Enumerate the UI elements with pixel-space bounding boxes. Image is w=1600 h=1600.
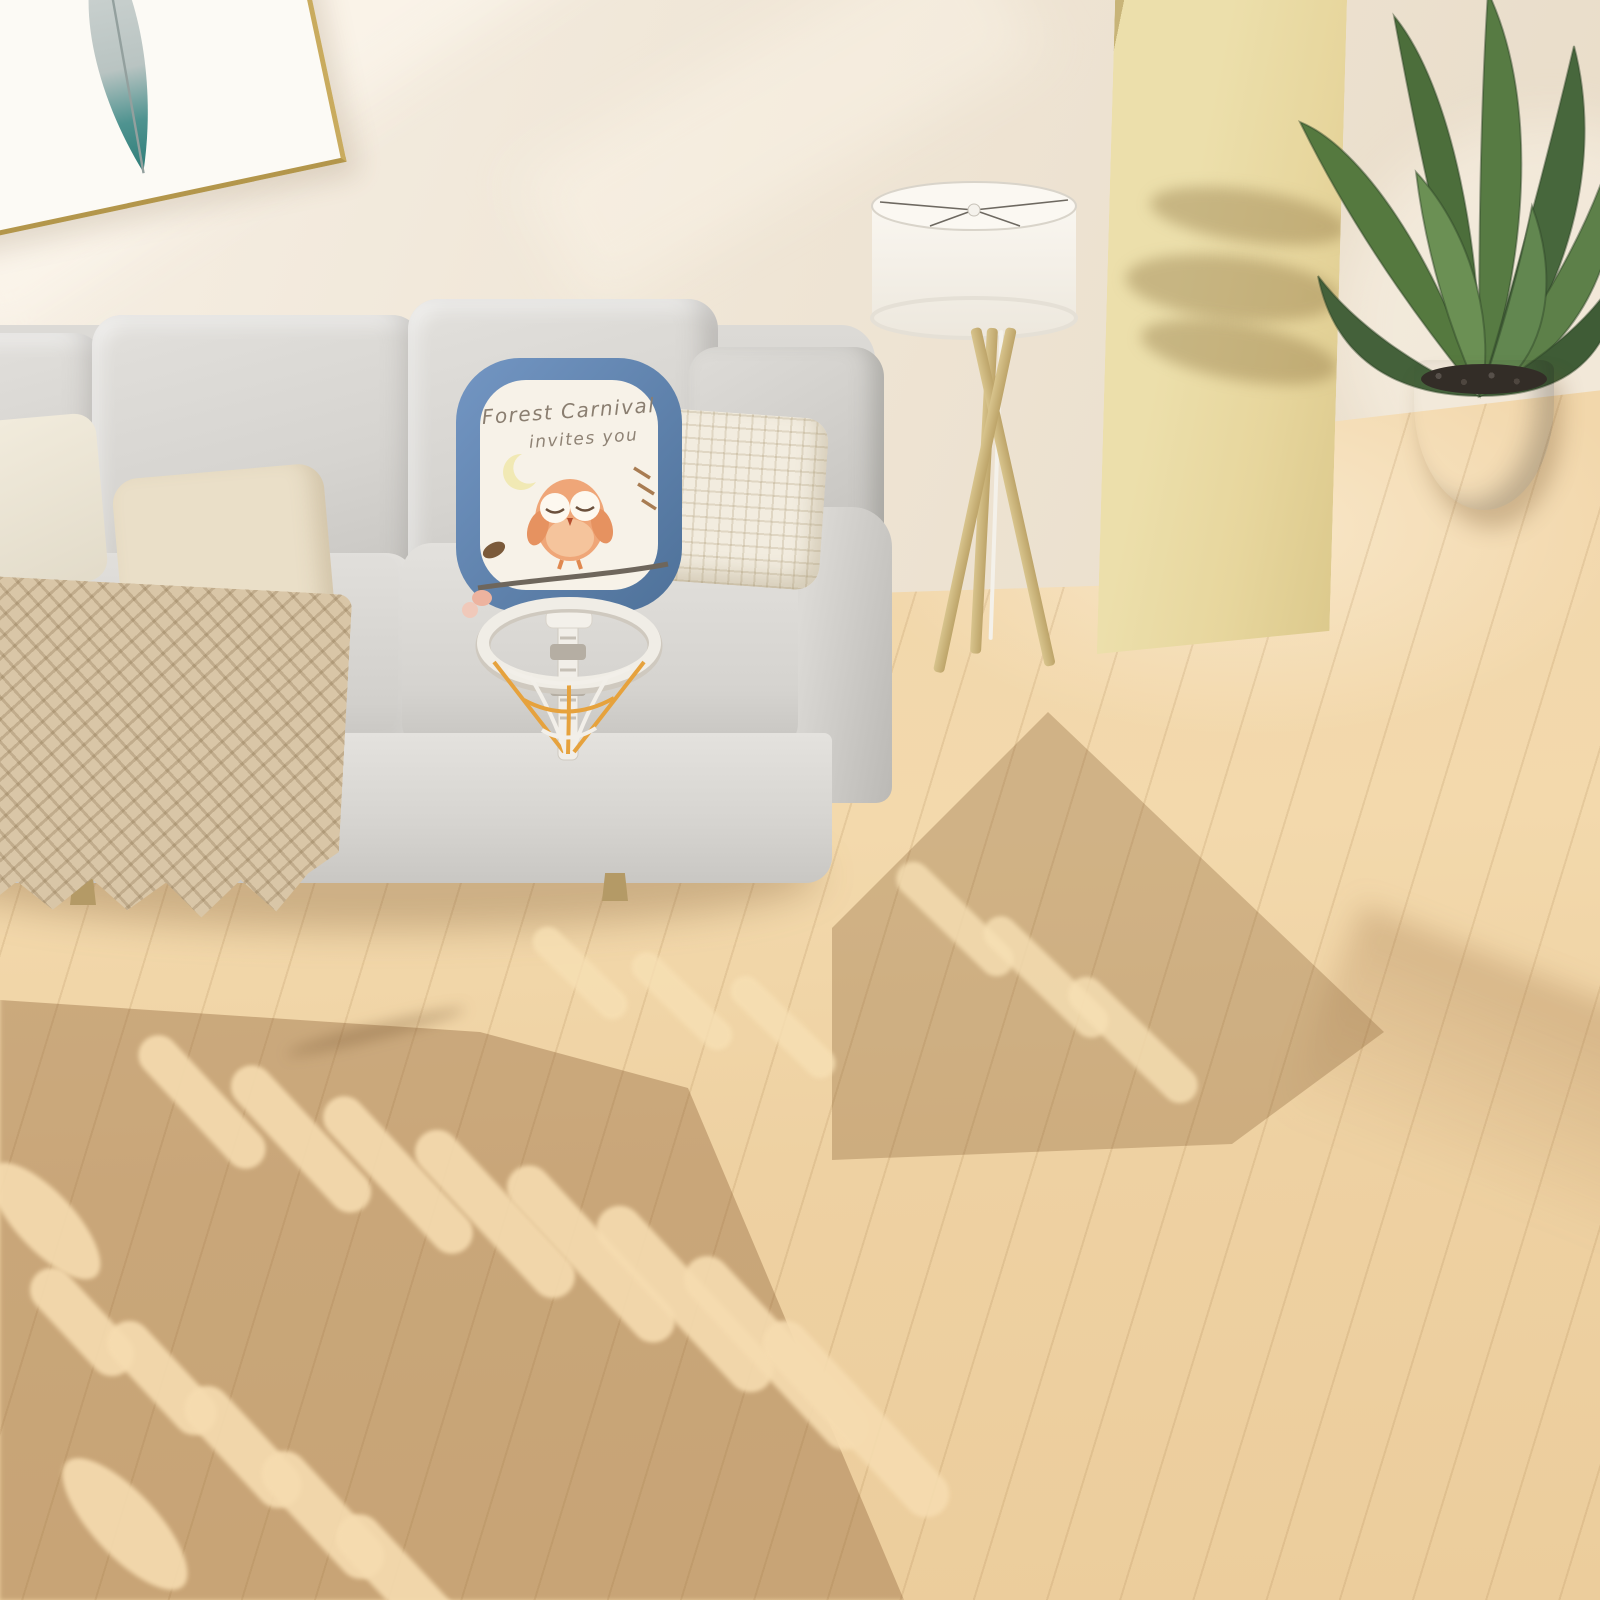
basketball-hoop-stand: Forest Carnival invites you — [438, 348, 702, 772]
sofa-leg — [602, 873, 628, 901]
living-room-scene: Forest Carnival invites you — [0, 0, 1600, 1600]
cream-pillow — [0, 412, 109, 590]
